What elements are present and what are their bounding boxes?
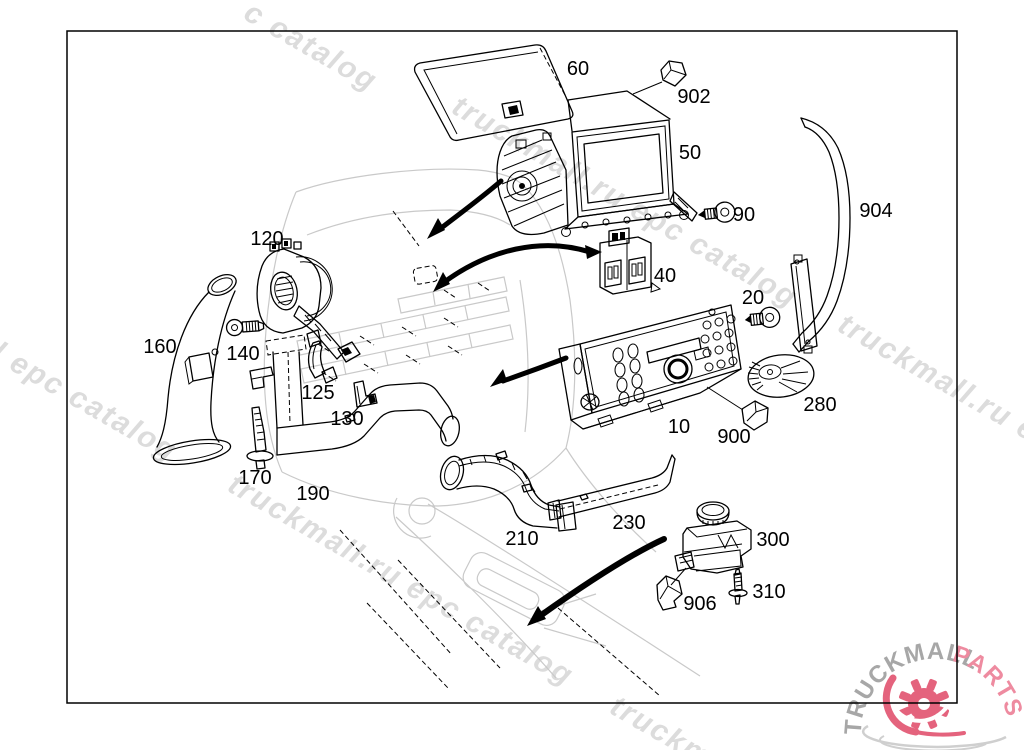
part-label-900: 900: [717, 426, 750, 448]
part-300-control-unit: [671, 502, 751, 585]
part-label-230: 230: [612, 512, 645, 534]
part-label-310: 310: [752, 581, 785, 603]
part-20-screw: [744, 306, 781, 330]
part-label-125: 125: [301, 382, 334, 404]
parts-catalog-image: c catalog truckmall.ru epc catalog truck…: [0, 0, 1024, 750]
part-40-connector: [600, 228, 660, 294]
logo-swoosh-pink-tail: [916, 732, 964, 735]
part-10-radio-unit: [559, 305, 741, 429]
watermark-text: truckmall.ru epc catalog: [223, 467, 580, 692]
part-140-screw: [226, 318, 264, 337]
part-label-210: 210: [505, 528, 538, 550]
part-label-160: 160: [143, 336, 176, 358]
part-label-90: 90: [733, 204, 755, 226]
part-120-vent-actuator: [257, 239, 360, 362]
center-console: [394, 448, 700, 678]
part-label-120: 120: [250, 228, 283, 250]
part-label-170: 170: [238, 467, 271, 489]
part-310-screw: [729, 569, 747, 604]
arrow-control-to-console: [527, 539, 664, 626]
watermark-text: truckmall.ru epc catalog: [447, 89, 804, 314]
part-label-50: 50: [679, 142, 701, 164]
parts-diagram-svg: c catalog truckmall.ru epc catalog truck…: [0, 0, 1024, 750]
part-label-20: 20: [742, 287, 764, 309]
gear-icon: [898, 678, 950, 729]
part-230-air-tube: [548, 455, 675, 520]
part-130-clip: [354, 381, 377, 407]
part-label-904: 904: [859, 200, 892, 222]
part-label-40: 40: [654, 265, 676, 287]
part-label-906: 906: [683, 593, 716, 615]
part-170-screw: [247, 407, 273, 469]
watermark-text: truckmall.ru epc: [605, 689, 850, 750]
part-label-140: 140: [226, 343, 259, 365]
part-label-130: 130: [330, 408, 363, 430]
watermark-text: truckmall.ru e: [833, 307, 1024, 448]
part-label-60: 60: [567, 58, 589, 80]
logo-text-parts: PARTS: [950, 641, 1024, 720]
part-label-902: 902: [677, 86, 710, 108]
part-190-air-duct: [266, 335, 462, 455]
watermark-text: c catalog: [239, 0, 384, 98]
part-label-190: 190: [296, 483, 329, 505]
part-label-10: 10: [668, 416, 690, 438]
part-label-280: 280: [803, 394, 836, 416]
part-90-screw: [697, 201, 736, 225]
part-label-300: 300: [756, 529, 789, 551]
arrow-connector-to-dash: [433, 245, 602, 292]
brand-logo: TRUCKMALL PARTS: [840, 638, 1024, 750]
part-904-pillar-trim: [791, 118, 850, 353]
part-906-clip: [657, 576, 682, 610]
